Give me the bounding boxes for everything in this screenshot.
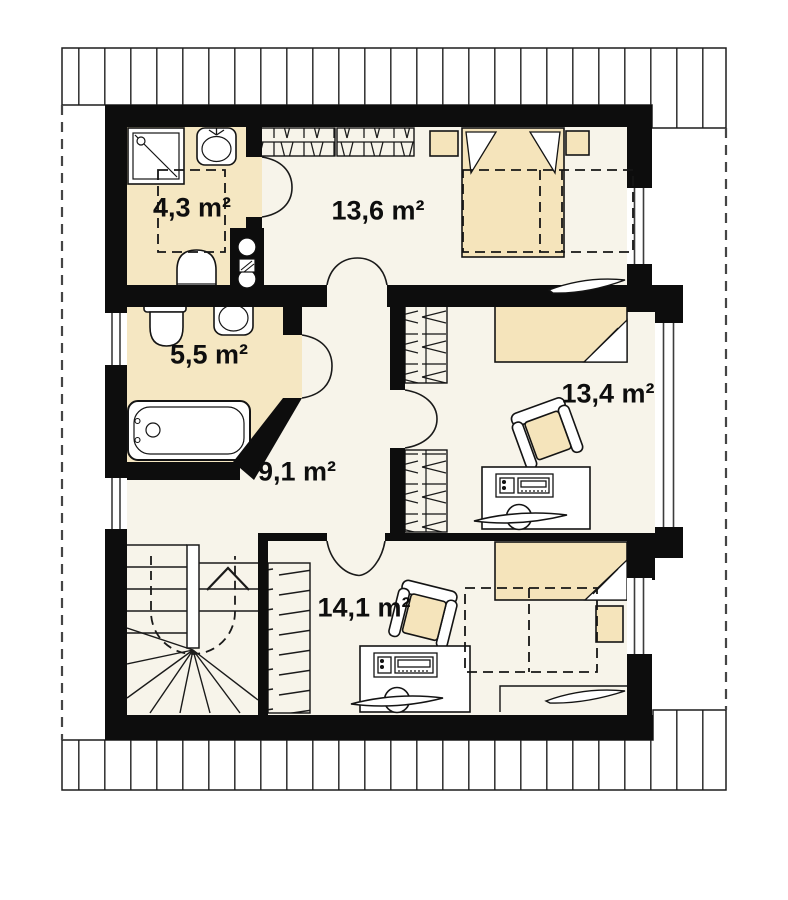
bathtub-icon bbox=[128, 401, 250, 460]
window-symbol bbox=[105, 475, 127, 532]
wardrobe-icon bbox=[259, 128, 414, 156]
floor-plan-canvas: 4,3 m² 13,6 m² 5,5 m² 13,4 m² 9,1 m² 14,… bbox=[0, 0, 788, 900]
chimney-flue-icon bbox=[230, 228, 264, 297]
room-label-bedroom-top: 13,6 m² bbox=[331, 196, 424, 227]
double-bed bbox=[462, 128, 564, 257]
single-bed bbox=[495, 300, 627, 362]
nightstand bbox=[566, 131, 589, 155]
nightstand bbox=[596, 606, 623, 642]
room-label-bathroom-large: 5,5 m² bbox=[170, 340, 248, 371]
computer-icon bbox=[496, 474, 553, 497]
computer-icon bbox=[374, 653, 437, 677]
room-label-bathroom-small: 4,3 m² bbox=[153, 193, 231, 224]
window-symbol bbox=[105, 310, 127, 368]
single-bed bbox=[495, 542, 627, 600]
wardrobe-icon bbox=[268, 563, 310, 713]
sink-icon bbox=[197, 128, 236, 165]
floor-plan-drawing bbox=[0, 0, 788, 900]
shower-icon bbox=[128, 128, 184, 184]
room-label-bedroom-bottom: 14,1 m² bbox=[317, 593, 410, 624]
nightstand bbox=[430, 131, 458, 156]
window-symbol bbox=[655, 320, 683, 530]
room-label-bedroom-right: 13,4 m² bbox=[561, 379, 654, 410]
room-label-hallway: 9,1 m² bbox=[258, 457, 336, 488]
window-symbol bbox=[627, 185, 652, 267]
window-symbol bbox=[627, 575, 652, 657]
